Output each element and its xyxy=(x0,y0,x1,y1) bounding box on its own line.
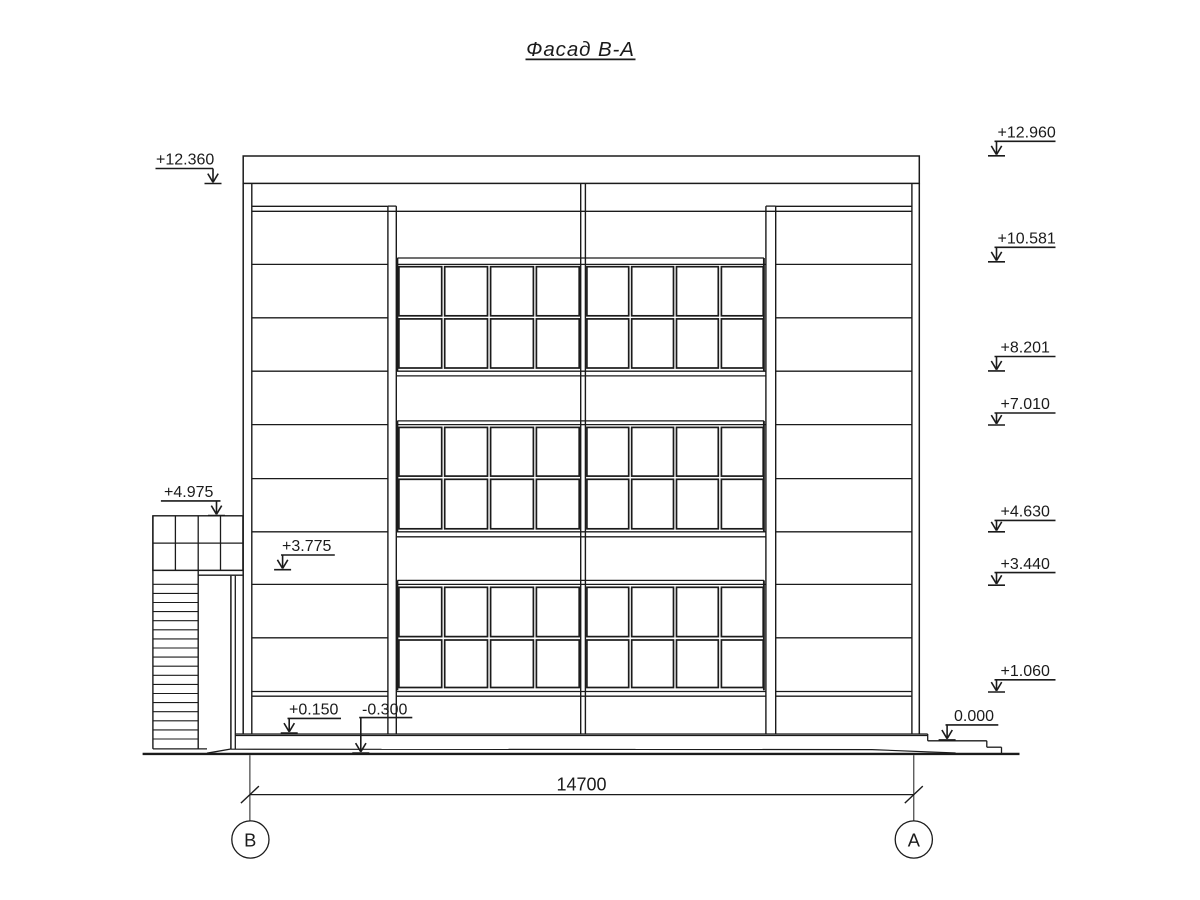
svg-text:+8.201: +8.201 xyxy=(1001,340,1050,357)
svg-text:+0.150: +0.150 xyxy=(289,702,338,719)
svg-text:+3.440: +3.440 xyxy=(1001,556,1050,573)
svg-text:Фасад В-А: Фасад В-А xyxy=(526,38,635,61)
svg-text:+7.010: +7.010 xyxy=(1001,396,1050,413)
svg-text:А: А xyxy=(908,829,921,850)
svg-text:+1.060: +1.060 xyxy=(1001,663,1050,680)
svg-text:+12.960: +12.960 xyxy=(998,125,1056,142)
svg-text:В: В xyxy=(244,829,256,850)
svg-text:+4.975: +4.975 xyxy=(164,484,213,501)
svg-text:+4.630: +4.630 xyxy=(1001,504,1050,521)
svg-text:+3.775: +3.775 xyxy=(282,538,331,555)
svg-text:+10.581: +10.581 xyxy=(998,231,1056,248)
svg-text:14700: 14700 xyxy=(556,775,606,795)
svg-text:-0.300: -0.300 xyxy=(362,702,407,719)
svg-text:0.000: 0.000 xyxy=(954,708,994,725)
svg-text:+12.360: +12.360 xyxy=(156,152,214,169)
